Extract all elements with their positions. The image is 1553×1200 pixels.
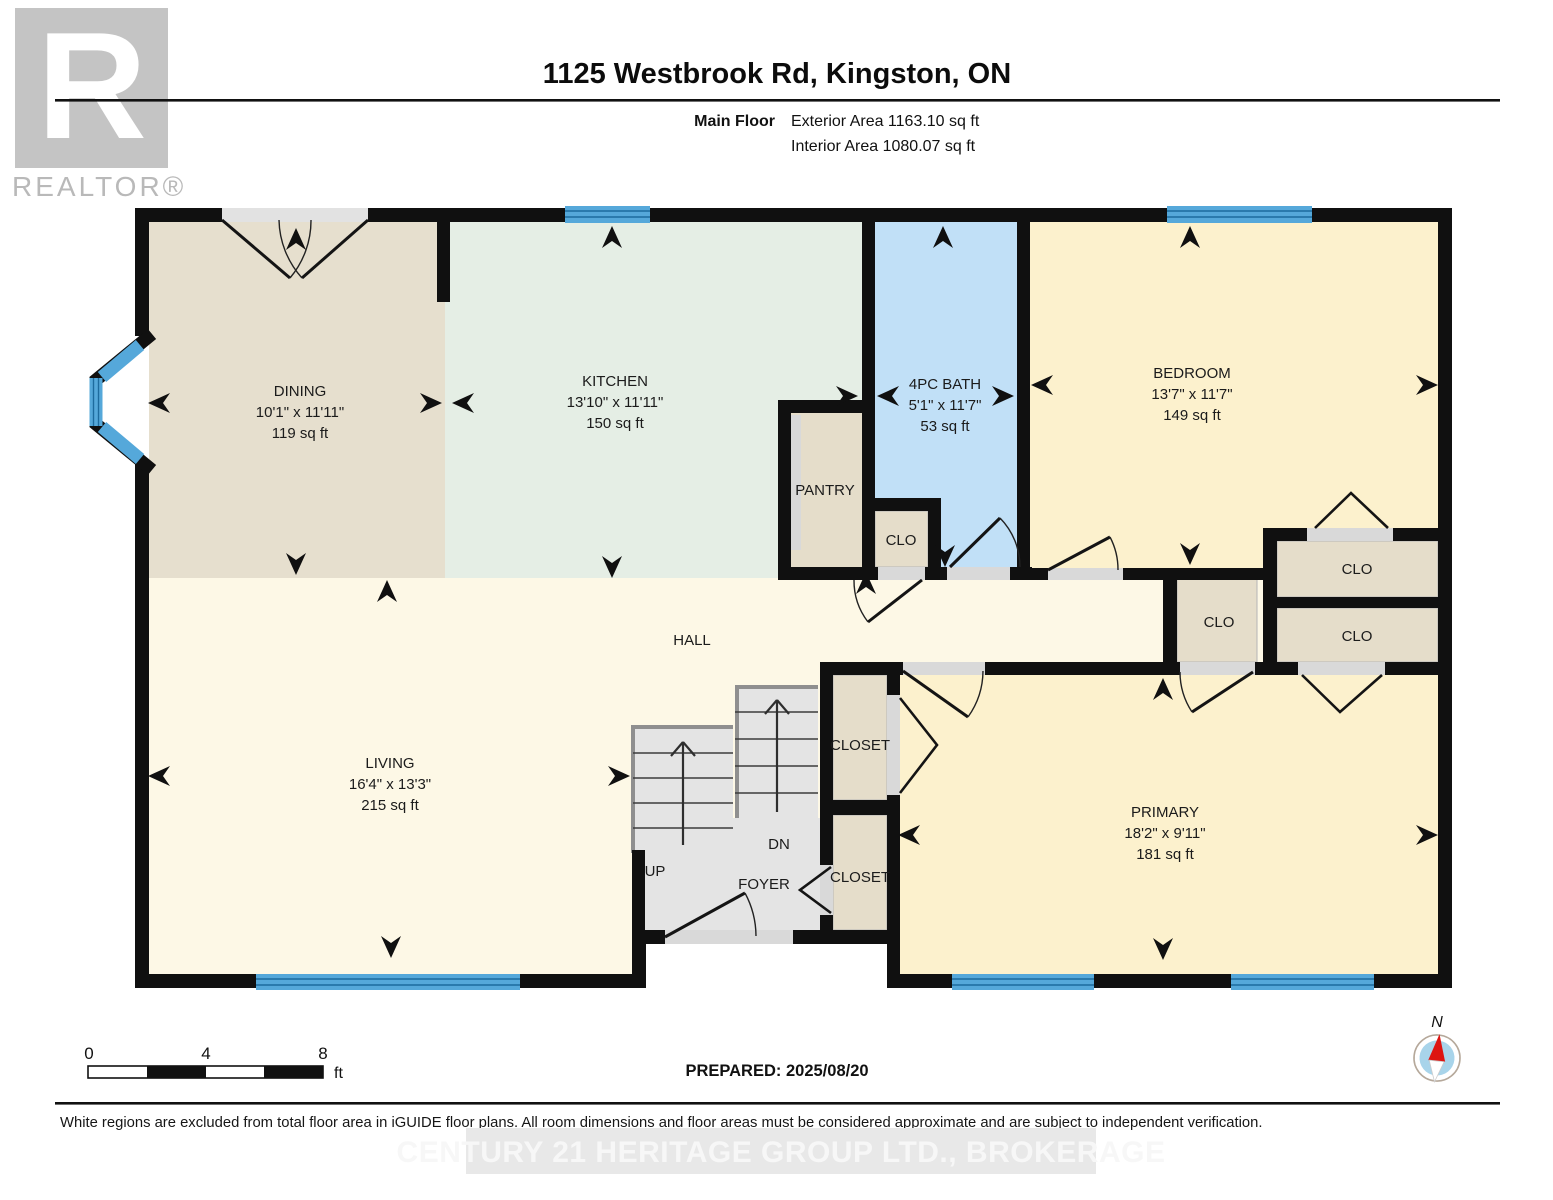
kitchen-dims: 13'10" x 11'11" — [567, 394, 664, 411]
living-dims: 16'4" x 13'3" — [349, 776, 431, 793]
kitchen-window — [565, 206, 650, 223]
brokerage-watermark: CENTURY 21 HERITAGE GROUP LTD., BROKERAG… — [397, 1136, 1166, 1169]
dining-area: 119 sq ft — [272, 425, 329, 442]
floorplan-page: R REALTOR® 1125 Westbrook Rd, Kingston, … — [0, 0, 1553, 1200]
bedroom-name: BEDROOM — [1153, 365, 1231, 382]
floorplan-canvas: R REALTOR® 1125 Westbrook Rd, Kingston, … — [0, 0, 1553, 1200]
header-divider — [55, 99, 1500, 102]
bedroom-window — [1167, 206, 1312, 223]
bedroom-label: BEDROOM 13'7" x 11'7" 149 sq ft — [1151, 365, 1232, 424]
mid-clo-label: CLO — [1204, 614, 1235, 631]
bath-dims: 5'1" x 11'7" — [909, 397, 982, 414]
kitchen-area: 150 sq ft — [586, 415, 644, 432]
prepared-date: PREPARED: 2025/08/20 — [685, 1062, 868, 1080]
entry-door-sill — [665, 930, 793, 944]
primary-name: PRIMARY — [1131, 804, 1199, 821]
footer: White regions are excluded from total fl… — [55, 1102, 1500, 1174]
scale-4: 4 — [201, 1044, 210, 1063]
realtor-wordmark: REALTOR® — [12, 171, 186, 202]
primary-label: PRIMARY 18'2" x 9'11" 181 sq ft — [1124, 804, 1205, 863]
primary-area: 181 sq ft — [1136, 846, 1194, 863]
interior-area: Interior Area 1080.07 sq ft — [791, 138, 976, 155]
dining-name: DINING — [274, 383, 327, 400]
primary-window-left — [952, 974, 1094, 990]
living-window — [256, 974, 520, 990]
page-title: 1125 Westbrook Rd, Kingston, ON — [543, 58, 1011, 90]
room-fills — [149, 222, 1438, 974]
kitchen-name: KITCHEN — [582, 373, 648, 390]
primary-dims: 18'2" x 9'11" — [1124, 825, 1205, 842]
compass-n-label: N — [1431, 1014, 1443, 1031]
footer-divider — [55, 1102, 1500, 1105]
bedroom-dims: 13'7" x 11'7" — [1151, 386, 1232, 403]
living-area: 215 sq ft — [361, 797, 419, 814]
pantry-name: PANTRY — [795, 482, 854, 499]
bath-name: 4PC BATH — [909, 376, 981, 393]
french-door-sill — [222, 208, 368, 222]
closet-upper-label: CLOSET — [830, 737, 890, 754]
closet-lower-label: CLOSET — [830, 869, 890, 886]
bath-clo-label: CLO — [886, 532, 917, 549]
floor-label: Main Floor — [694, 113, 775, 130]
up-label: UP — [645, 863, 666, 880]
living-name: LIVING — [365, 755, 414, 772]
header: 1125 Westbrook Rd, Kingston, ON Main Flo… — [55, 58, 1500, 155]
right-clo-lower-label: CLO — [1342, 628, 1373, 645]
realtor-r-icon: R — [37, 1, 147, 171]
dn-label: DN — [768, 836, 790, 853]
primary-window-right — [1231, 974, 1374, 990]
bath-area: 53 sq ft — [920, 418, 970, 435]
dining-dims: 10'1" x 11'11" — [256, 404, 344, 421]
scale-unit: ft — [334, 1065, 343, 1082]
hall-name: HALL — [673, 632, 711, 649]
right-clo-upper-label: CLO — [1342, 561, 1373, 578]
dining-floor — [149, 222, 445, 578]
exterior-area: Exterior Area 1163.10 sq ft — [791, 113, 980, 130]
bedroom-area: 149 sq ft — [1163, 407, 1221, 424]
scale-0: 0 — [84, 1044, 93, 1063]
scale-8: 8 — [318, 1044, 327, 1063]
foyer-name: FOYER — [738, 876, 790, 893]
compass-icon: N — [1412, 1014, 1463, 1084]
entry-recess — [646, 944, 887, 988]
scale-bar: 0 4 8 ft — [84, 1044, 343, 1082]
